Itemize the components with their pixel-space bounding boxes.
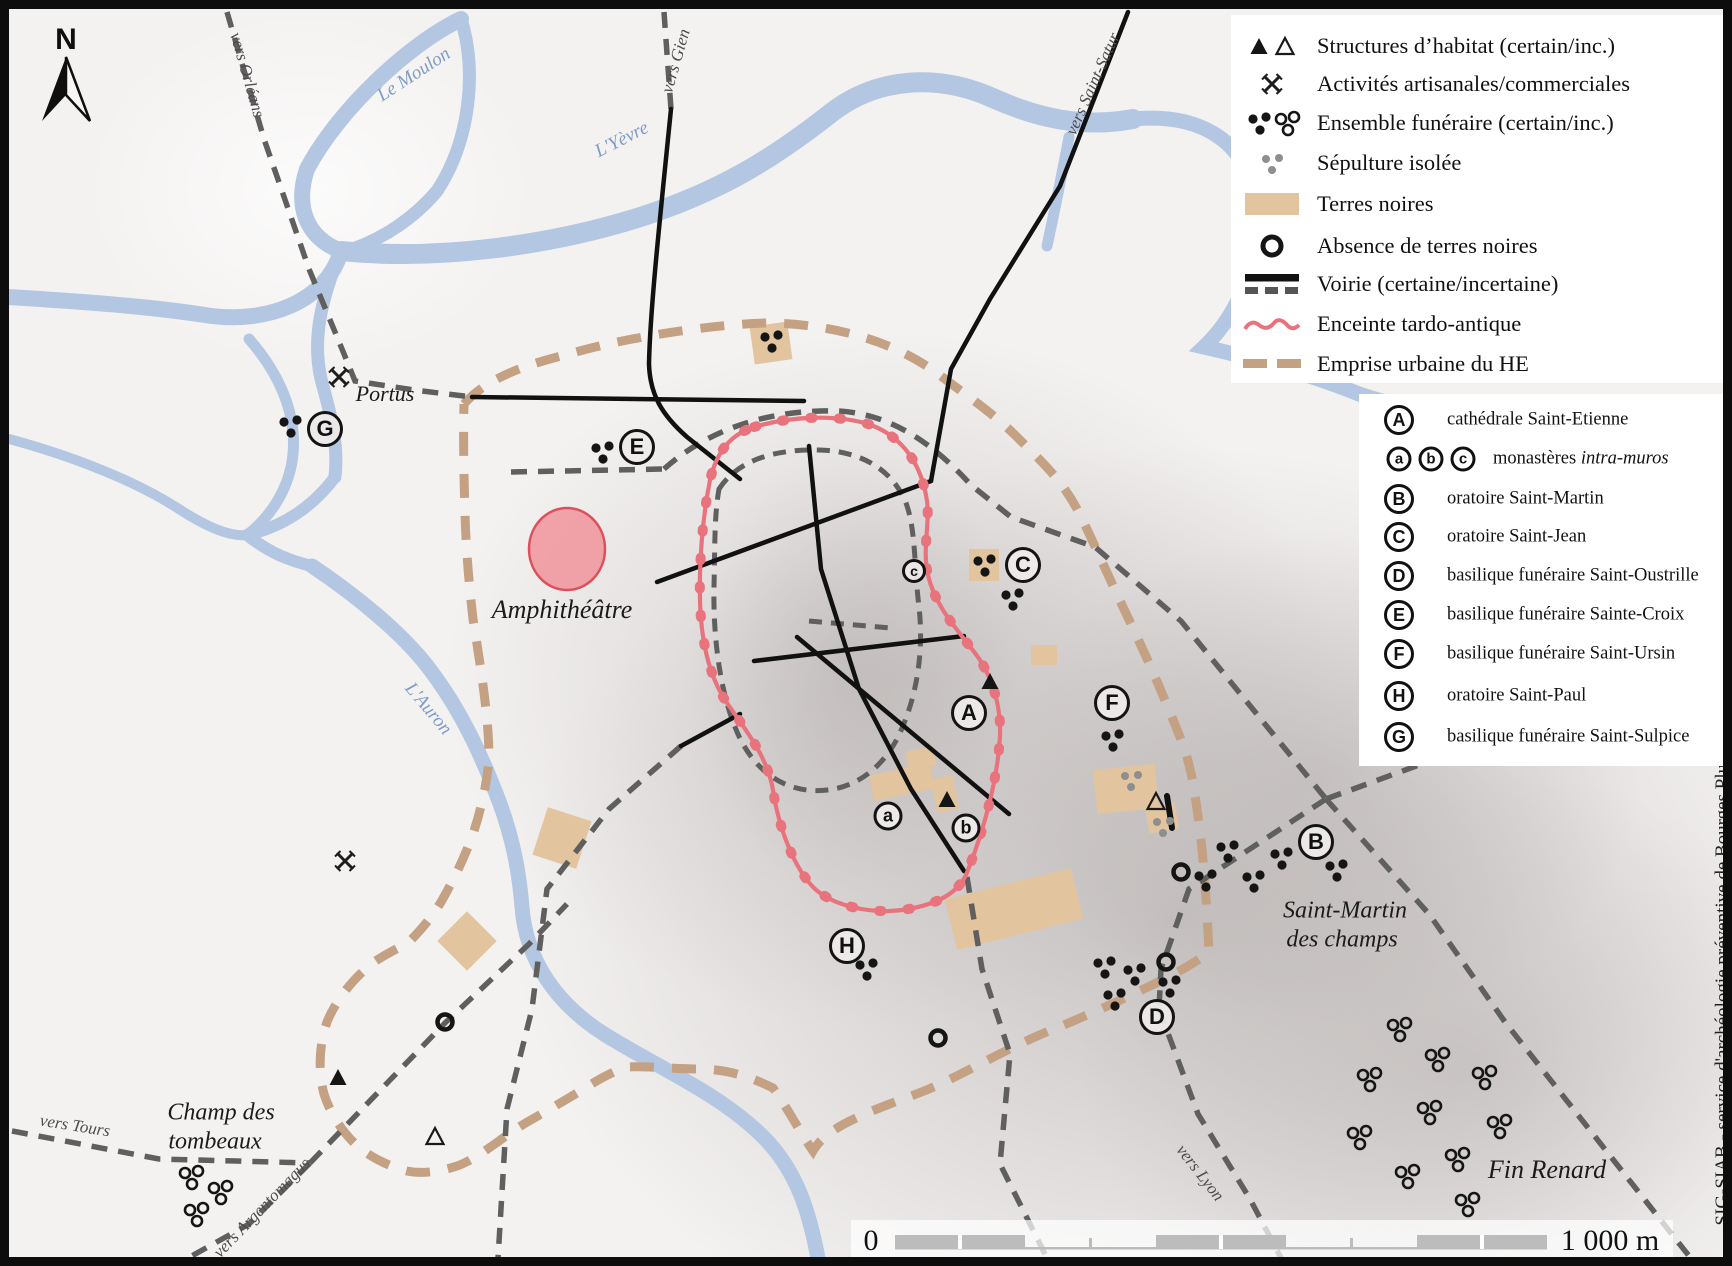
legend-label: Voirie (certaine/incertaine) — [1317, 271, 1558, 297]
emprise-urbaine-line — [320, 323, 1209, 1172]
scale-distance-label: 1 000 m — [1561, 1224, 1659, 1258]
legend-label: Terres noires — [1317, 191, 1434, 217]
legend-label: Structures d’habitat (certain/inc.) — [1317, 33, 1615, 59]
legend-row-B: Boratoire Saint-Martin — [1359, 481, 1731, 517]
emprise-icon — [1231, 346, 1313, 382]
legend-symbols: Structures d’habitat (certain/inc.) Acti… — [1231, 15, 1732, 383]
letter-badge: c — [1451, 447, 1476, 472]
legend-row-C: Coratoire Saint-Jean — [1359, 519, 1731, 555]
voirie-icon — [1231, 266, 1313, 302]
habitat-icon — [1231, 28, 1313, 64]
letter-badge: F — [1384, 639, 1414, 669]
map-label-fin-renard: Fin Renard — [1488, 1155, 1606, 1185]
legend-label: monastères intra-muros — [1493, 449, 1669, 470]
legend-row-G: Gbasilique funéraire Saint-Sulpice — [1359, 719, 1731, 755]
legend-row-A: Acathédrale Saint-Etienne — [1359, 402, 1731, 438]
absence-icon — [1231, 228, 1313, 264]
legend-row-terres: Terres noires — [1231, 186, 1732, 222]
legend-label: basilique funéraire Sainte-Croix — [1447, 605, 1684, 626]
legend-row-enceinte: Enceinte tardo-antique — [1231, 306, 1732, 342]
north-arrow-icon — [42, 57, 90, 121]
letter-badge: a — [1387, 447, 1412, 472]
legend-label: Enceinte tardo-antique — [1317, 311, 1521, 337]
legend-row-absence: Absence de terres noires — [1231, 228, 1732, 264]
placemark-A: A — [951, 695, 987, 731]
placemark-C: C — [1005, 547, 1041, 583]
sepulture-icon — [1231, 145, 1313, 181]
legend-row-H: Horatoire Saint-Paul — [1359, 678, 1731, 714]
letter-badge: H — [1384, 681, 1414, 711]
placemark-c: c — [902, 559, 926, 583]
map-label-saint-martin-2: des champs — [1286, 927, 1397, 954]
letter-badge: B — [1384, 484, 1414, 514]
legend-row-funerary: Ensemble funéraire (certain/inc.) — [1231, 105, 1732, 141]
placemark-E: E — [619, 429, 655, 465]
placemark-D: D — [1139, 999, 1175, 1035]
letter-badge: A — [1384, 405, 1414, 435]
placemark-b: b — [952, 814, 981, 843]
letter-badge: C — [1384, 522, 1414, 552]
funerary-icon — [1231, 105, 1313, 141]
map-label-amphitheatre: Amphithéâtre — [492, 595, 633, 625]
legend-row-abc: a b c monastères intra-muros — [1359, 441, 1731, 477]
letter-badge: E — [1384, 600, 1414, 630]
legend-label: Ensemble funéraire (certain/inc.) — [1317, 110, 1614, 136]
artisanal-icon — [1231, 66, 1313, 102]
legend-letters: Acathédrale Saint-Etienne a b c monastèr… — [1359, 394, 1731, 766]
legend-row-sepulture: Sépulture isolée — [1231, 145, 1732, 181]
enceinte-icon — [1231, 306, 1313, 342]
terres-noires-icon — [1231, 186, 1313, 222]
archaeological-map-bourges: 0 1 000 m N SIG-SIAB - service d'archéol… — [0, 0, 1732, 1266]
legend-row-artisanal: Activités artisanales/commerciales — [1231, 66, 1732, 102]
scale-zero-label: 0 — [864, 1224, 879, 1258]
north-label: N — [55, 23, 77, 57]
map-label-saint-martin-1: Saint-Martin — [1283, 898, 1407, 925]
credit-text: SIG-SIAB - service d'archéologie prévent… — [1712, 757, 1732, 1226]
legend-label: cathédrale Saint-Etienne — [1447, 410, 1628, 431]
placemark-G: G — [307, 411, 343, 447]
legend-label: basilique funéraire Saint-Ursin — [1447, 644, 1675, 665]
placemark-B: B — [1298, 824, 1334, 860]
map-label-portus: Portus — [356, 381, 415, 407]
legend-label: basilique funéraire Saint-Sulpice — [1447, 727, 1689, 748]
placemark-H: H — [829, 928, 865, 964]
placemark-a: a — [874, 802, 903, 831]
legend-row-D: Dbasilique funéraire Saint-Oustrille — [1359, 558, 1731, 594]
map-label-champ-des-tombeaux-1: Champ des — [167, 1100, 274, 1127]
legend-label: Activités artisanales/commerciales — [1317, 71, 1630, 97]
legend-row-E: Ebasilique funéraire Sainte-Croix — [1359, 597, 1731, 633]
scale-bar-band — [851, 1220, 1673, 1266]
legend-label: oratoire Saint-Paul — [1447, 686, 1586, 707]
letter-badge: G — [1384, 722, 1414, 752]
amphitheatre-shape — [529, 508, 605, 590]
legend-label: oratoire Saint-Jean — [1447, 527, 1586, 548]
legend-label: Emprise urbaine du HE — [1317, 351, 1529, 377]
legend-label: Sépulture isolée — [1317, 150, 1461, 176]
map-label-champ-des-tombeaux-2: tombeaux — [168, 1129, 261, 1156]
legend-row-habitat: Structures d’habitat (certain/inc.) — [1231, 28, 1732, 64]
legend-row-voirie: Voirie (certaine/incertaine) — [1231, 266, 1732, 302]
placemark-F: F — [1094, 685, 1130, 721]
legend-row-F: Fbasilique funéraire Saint-Ursin — [1359, 636, 1731, 672]
letter-badge: b — [1419, 447, 1444, 472]
legend-label: oratoire Saint-Martin — [1447, 489, 1604, 510]
letter-badge: D — [1384, 561, 1414, 591]
legend-label: basilique funéraire Saint-Oustrille — [1447, 566, 1699, 587]
legend-label: Absence de terres noires — [1317, 233, 1538, 259]
legend-row-emprise: Emprise urbaine du HE — [1231, 346, 1732, 382]
